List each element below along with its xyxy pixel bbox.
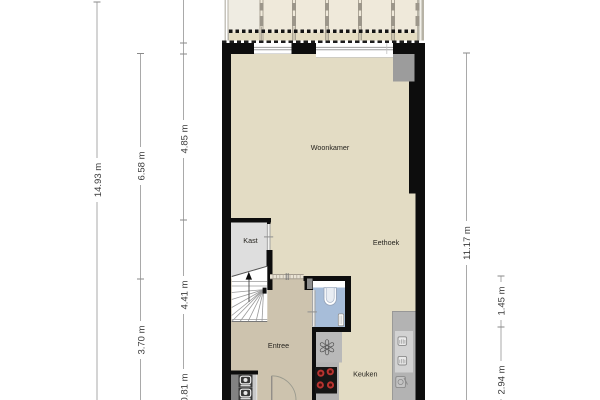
svg-text:Kast: Kast	[243, 236, 257, 245]
svg-text:Eethoek: Eethoek	[373, 238, 400, 247]
svg-text:3.70 m: 3.70 m	[136, 325, 147, 354]
svg-text:1.45 m: 1.45 m	[496, 286, 507, 315]
svg-text:6.58 m: 6.58 m	[136, 151, 147, 180]
svg-text:Keuken: Keuken	[353, 369, 377, 378]
svg-text:11.17 m: 11.17 m	[462, 226, 473, 260]
svg-text:4.41 m: 4.41 m	[179, 280, 190, 309]
svg-text:14.93 m: 14.93 m	[93, 163, 104, 197]
svg-text:Woonkamer: Woonkamer	[311, 143, 350, 152]
svg-text:0.81 m: 0.81 m	[179, 373, 190, 400]
svg-text:Entree: Entree	[268, 341, 289, 350]
svg-text:2.94 m: 2.94 m	[496, 365, 507, 394]
svg-text:4.85 m: 4.85 m	[179, 124, 190, 153]
